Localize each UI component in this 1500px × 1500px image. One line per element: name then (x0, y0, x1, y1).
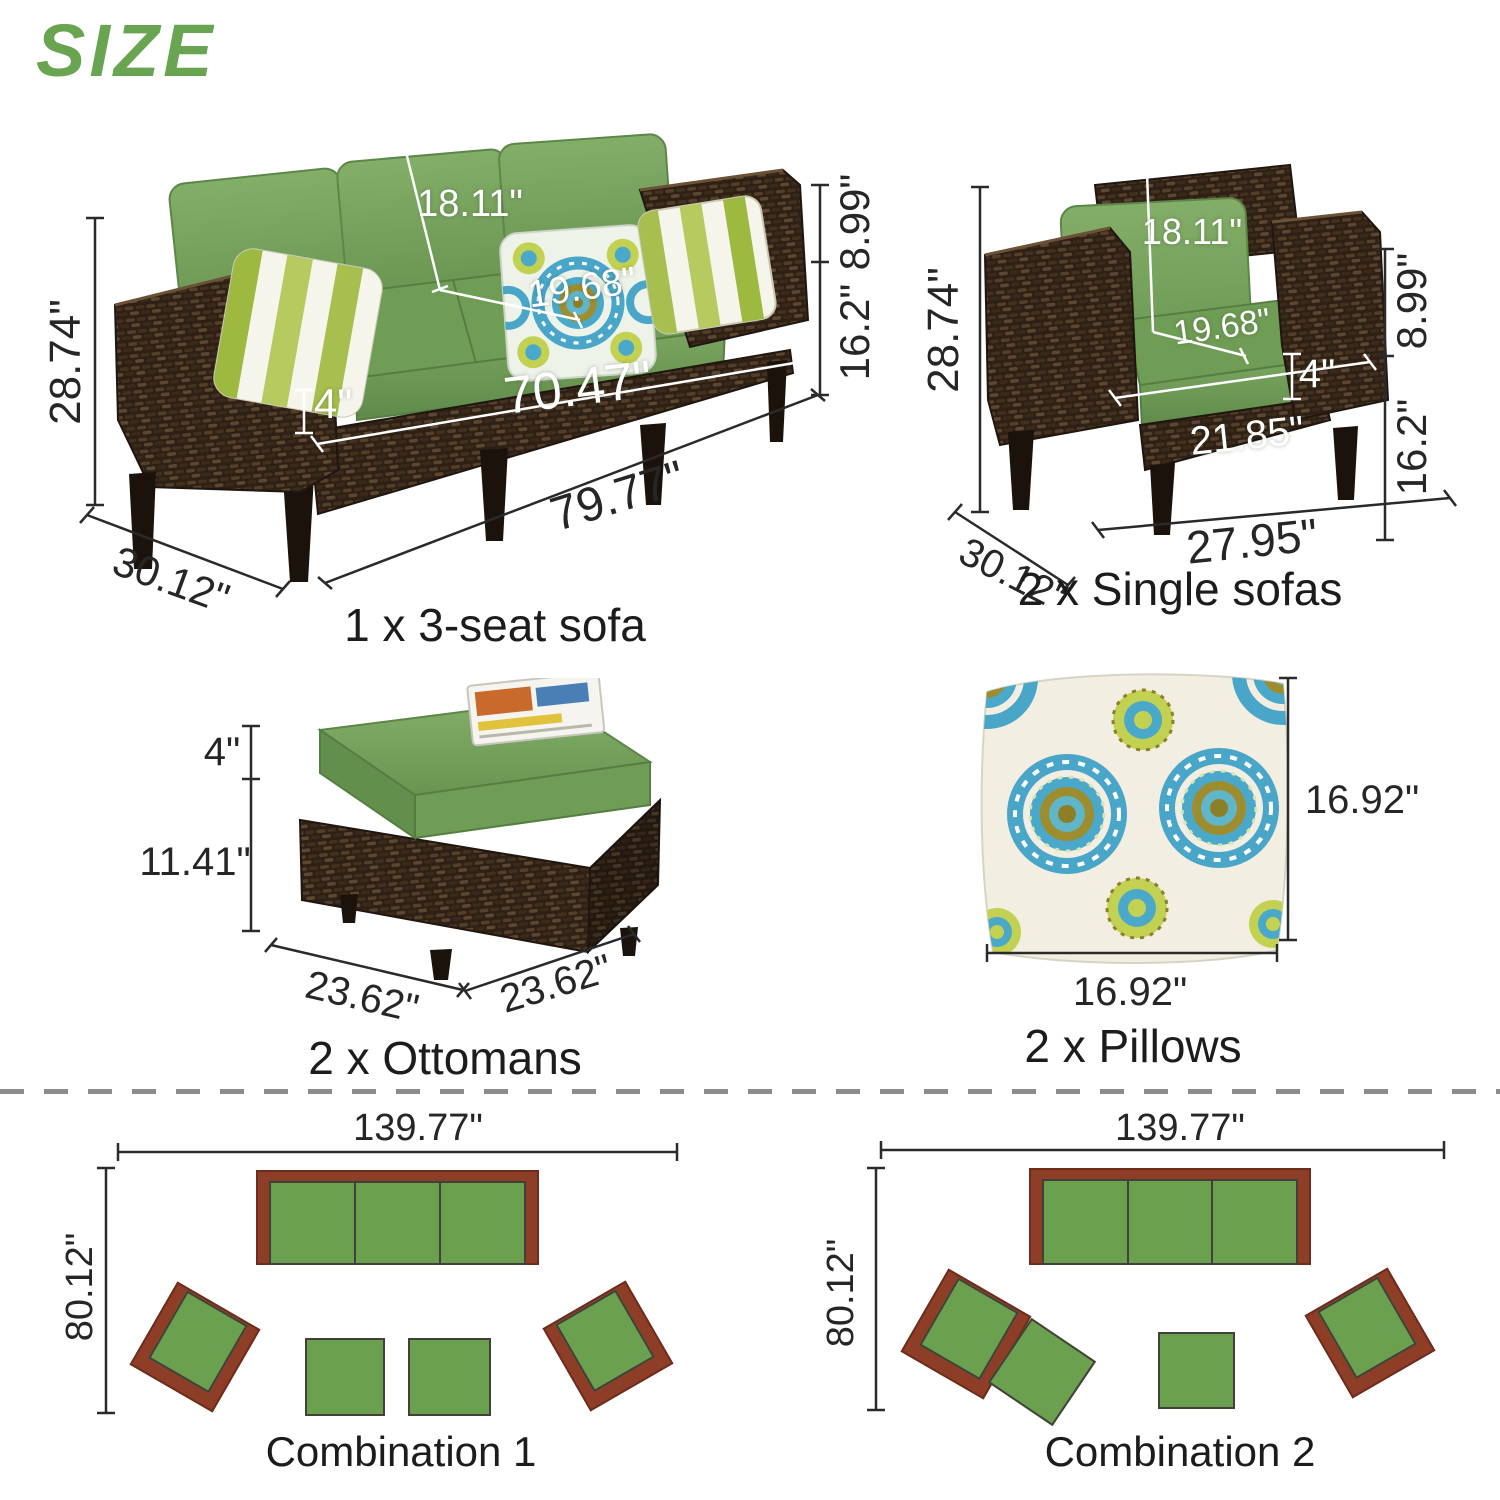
dim-single-height: 28.74" (922, 267, 966, 393)
pillow-illustration (975, 662, 1295, 977)
sofa-3seat-illustration (80, 105, 860, 595)
dim-pillow-width: 16.92" (1073, 972, 1187, 1012)
dim-ottoman-cushion-thickness: 4" (204, 732, 240, 772)
dim-combo1-width: 139.77" (353, 1109, 483, 1147)
caption-single-sofa: 2 x Single sofas (1018, 566, 1343, 612)
combo1-ottoman2-topdown (408, 1338, 491, 1416)
dim-combo1-depth: 80.12" (61, 1233, 99, 1342)
combo1-right-chair-topdown (542, 1280, 673, 1411)
combo1-sofa-topdown (256, 1170, 539, 1265)
dim-pillow-height: 16.92" (1305, 780, 1419, 820)
single-sofa-illustration (955, 125, 1425, 585)
striped-pillow-left (211, 246, 385, 420)
dim-single-back-cushion-height: 18.11" (1142, 214, 1242, 250)
combo1-ottoman1-topdown (305, 1338, 385, 1416)
dim-combo2-depth: 80.12" (822, 1239, 860, 1348)
caption-combo2: Combination 2 (1045, 1431, 1316, 1473)
caption-ottoman: 2 x Ottomans (308, 1035, 582, 1081)
dim-sofa3-height: 28.74" (44, 299, 88, 425)
dim-single-total-width: 27.95" (1184, 511, 1320, 570)
striped-pillow-right (636, 194, 778, 336)
page-title: SIZE (36, 8, 216, 93)
ottoman-front (300, 820, 590, 952)
combo2-sofa-topdown (1029, 1168, 1311, 1265)
caption-pillow: 2 x Pillows (1024, 1023, 1241, 1069)
dim-ottoman-base-height: 11.41" (139, 842, 250, 882)
dim-sofa3-seat-height: 16.2" (834, 284, 876, 381)
caption-sofa3: 1 x 3-seat sofa (344, 602, 646, 648)
dim-single-seat-height: 16.2" (1391, 399, 1433, 496)
section-divider (0, 1089, 1500, 1094)
dim-combo2-width: 139.77" (1115, 1109, 1245, 1147)
dim-single-cushion-thickness: 4" (1299, 354, 1335, 394)
combo1-left-chair-topdown (129, 1281, 260, 1412)
ottoman-illustration (255, 678, 685, 988)
dim-sofa3-cushion-thickness: 4" (314, 383, 352, 425)
dim-single-arm-height: 8.99" (1391, 253, 1433, 350)
size-diagram-page: SIZE (0, 0, 1500, 1500)
combo2-ottoman-topdown (1158, 1332, 1235, 1409)
chair-left-arm (985, 228, 1138, 445)
dim-sofa3-back-cushion-height: 18.11" (417, 185, 523, 223)
dim-sofa3-arm-height: 8.99" (834, 174, 876, 271)
combo2-right-chair-topdown (1304, 1267, 1435, 1398)
caption-combo1: Combination 1 (266, 1431, 537, 1473)
